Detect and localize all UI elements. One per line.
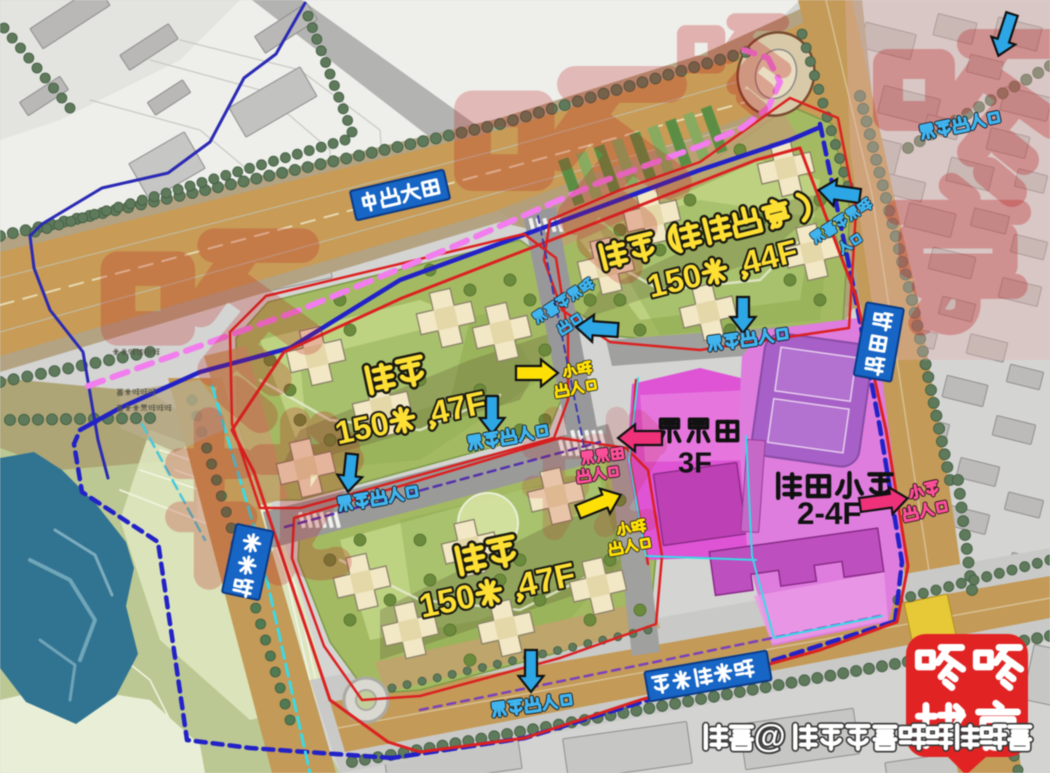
- svg-text:2-4F: 2-4F: [797, 496, 862, 531]
- svg-text:@: @: [754, 718, 786, 754]
- svg-text:3F: 3F: [678, 447, 712, 479]
